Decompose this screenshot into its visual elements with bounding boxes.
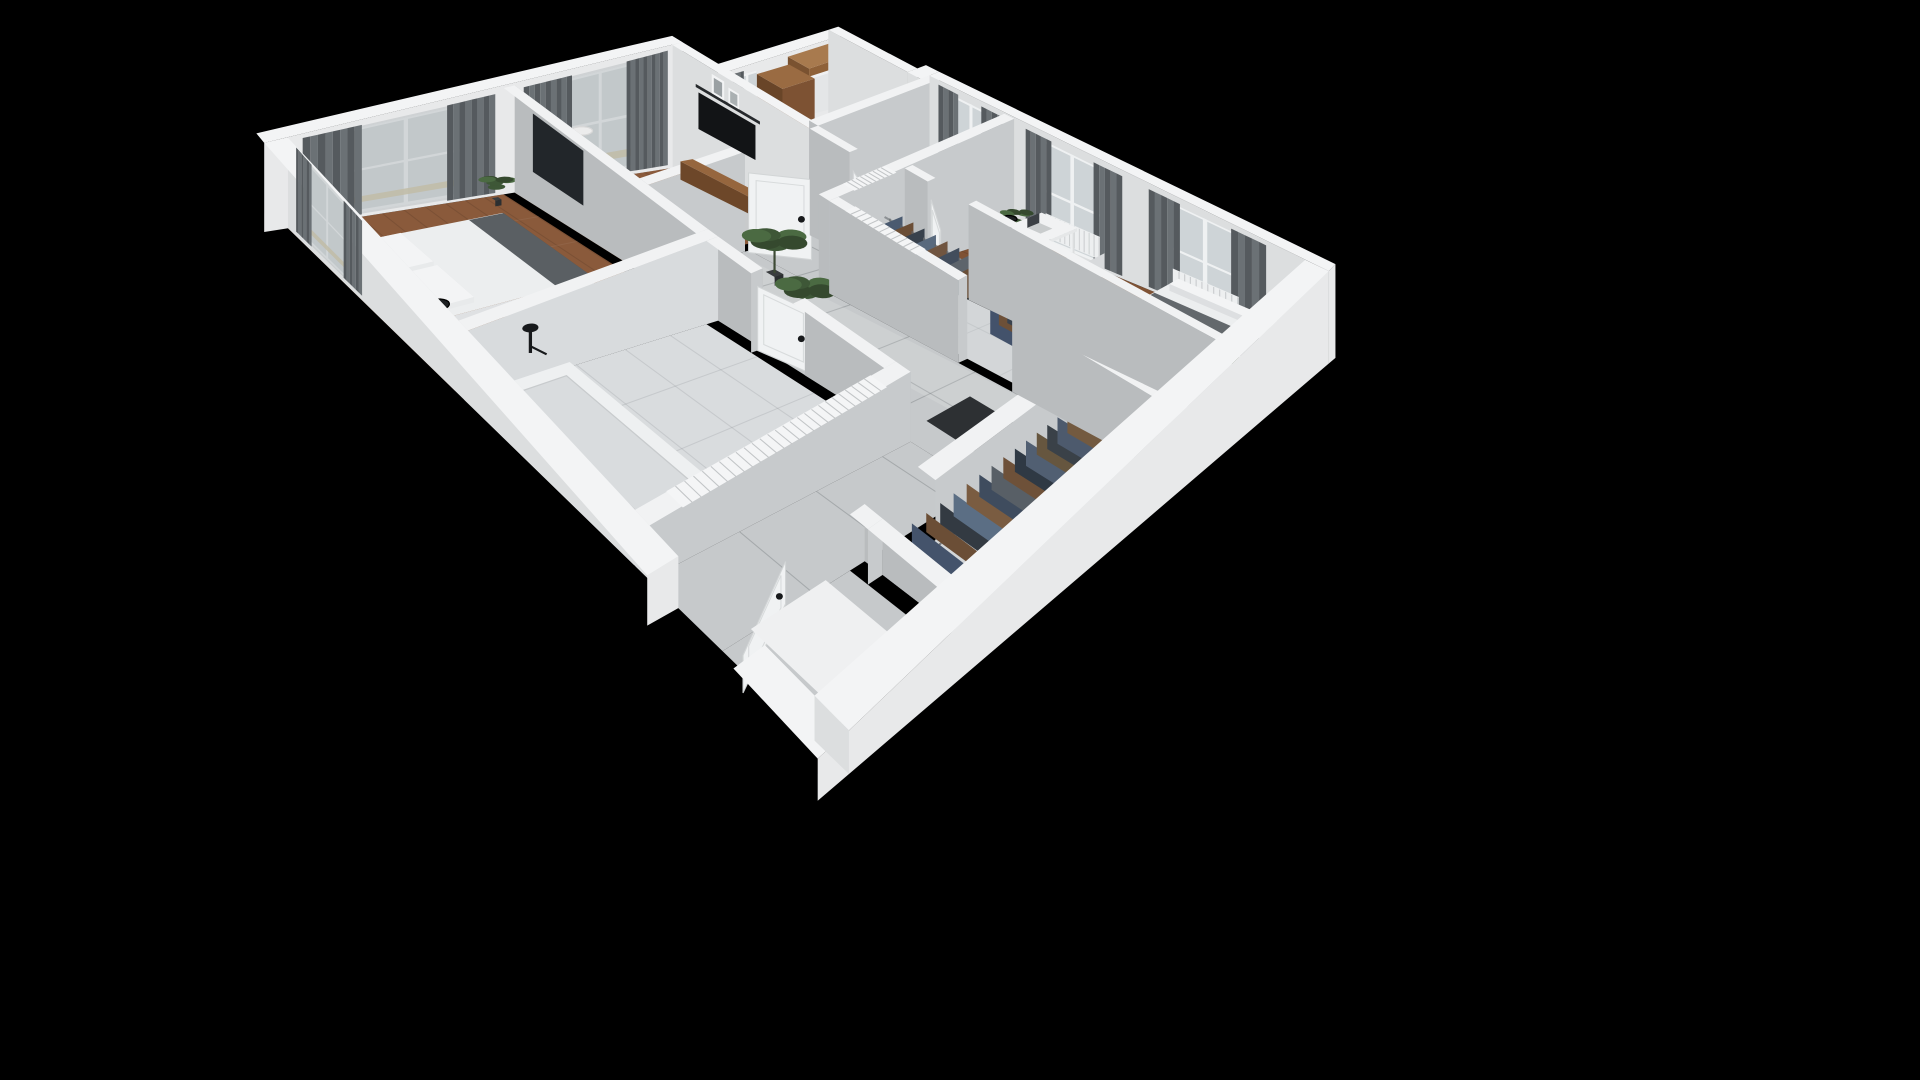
apartment-3d-floorplan <box>0 0 1920 1080</box>
render-stage <box>0 0 1920 1080</box>
